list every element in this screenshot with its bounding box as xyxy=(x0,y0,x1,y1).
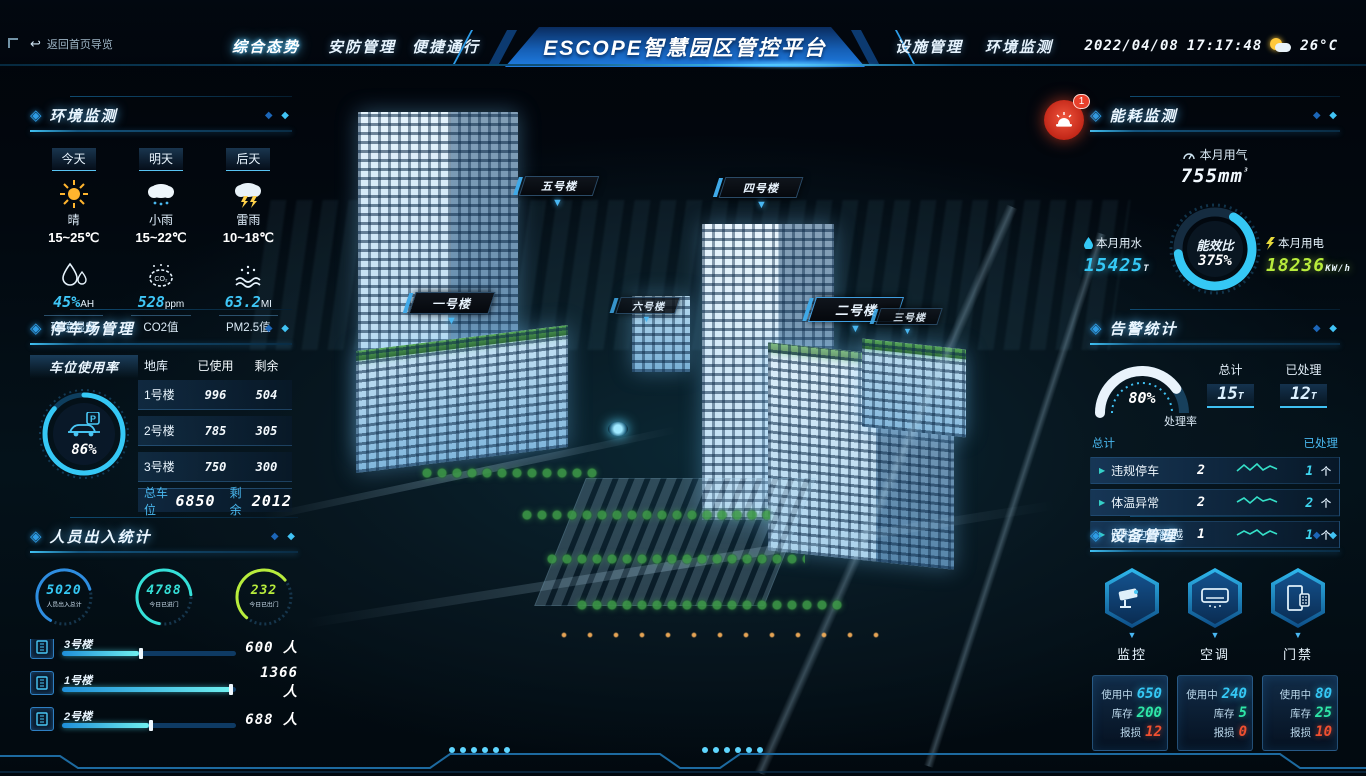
panel-diamond-icon: ◈ xyxy=(1090,319,1102,337)
occupancy-slider: 1号楼 1366 人 xyxy=(30,665,298,701)
building-occupancy-sliders: 3号楼 600 人 1号楼 1366 人 2号楼 688 人 xyxy=(30,639,298,743)
hex-pointer-icon: ▼ xyxy=(1096,630,1168,640)
tree-row xyxy=(545,552,805,566)
panel-diamond-icon: ◈ xyxy=(30,106,42,124)
sparkline xyxy=(1217,461,1297,480)
parking-lot xyxy=(534,478,816,606)
sparkline xyxy=(1217,493,1297,512)
col-left: 剩余 xyxy=(241,357,292,374)
svg-text:CO₂: CO₂ xyxy=(154,276,168,283)
row-arrow-icon: ▶ xyxy=(1099,466,1105,475)
total-spaces: 6850 xyxy=(175,492,215,510)
occupancy-slider: 3号楼 600 人 xyxy=(30,639,298,665)
label-pointer-icon: ▼ xyxy=(903,326,912,336)
header-divider xyxy=(0,64,1366,66)
panel-corner-diamonds: ◆ ◆ xyxy=(1313,530,1340,541)
alarm-row-temperature[interactable]: ▶ 体温异常 2 2 个 xyxy=(1090,489,1340,516)
car-parking-icon: P xyxy=(67,412,101,438)
rain-cloud-icon xyxy=(145,179,177,209)
sun-cloud-icon xyxy=(1270,38,1292,54)
co2-icon: CO₂ xyxy=(146,262,176,288)
device-card-door: 使用中80 库存25 报损10 xyxy=(1262,675,1338,751)
row-arrow-icon: ▶ xyxy=(1099,498,1105,507)
svg-text:P: P xyxy=(90,414,96,424)
hex-pointer-icon: ▼ xyxy=(1179,630,1251,640)
platform-title: ESCOPE智慧园区管控平台 xyxy=(543,32,827,62)
panel-title: 能耗监测 xyxy=(1110,105,1178,126)
alarm-row-illegal-parking[interactable]: ▶ 违规停车 2 1 个 xyxy=(1090,457,1340,484)
table-row: 2号楼 785 305 xyxy=(138,416,292,446)
panel-environment: ◈ 环境监测 ◆ ◆ 今天 晴 15~25℃ 明天 小雨 xyxy=(30,102,292,335)
panel-alarms: ◈ 告警统计 ◆ ◆ 80% 处理率 总计 15T 已处理 xyxy=(1090,315,1340,553)
street-lights xyxy=(560,632,890,638)
siren-icon xyxy=(1054,111,1074,129)
handle-rate-label: 处理率 xyxy=(1164,413,1197,429)
forecast-today: 今天 晴 15~25℃ xyxy=(30,148,117,246)
stat-total-inout: 5020 人员出入总计 xyxy=(32,565,96,629)
time-text: 17:17:48 xyxy=(1187,38,1262,54)
stat-exited-today: 232 今日已出门 xyxy=(232,565,296,629)
datetime-weather: 2022/04/08 17:17:48 26°C xyxy=(1085,38,1338,54)
alarm-bell-button[interactable]: 1 xyxy=(1044,100,1084,140)
temp-range: 15~25℃ xyxy=(30,230,117,246)
water-drop-icon xyxy=(1084,237,1093,249)
condition-label: 小雨 xyxy=(117,211,204,228)
label-pointer-icon: ▼ xyxy=(642,314,651,324)
panel-corner-diamonds: ◆ ◆ xyxy=(271,531,298,542)
tree-row xyxy=(420,466,600,480)
panel-diamond-icon: ◈ xyxy=(30,319,42,337)
panel-title: 设备管理 xyxy=(1110,525,1178,546)
label-pointer-icon: ▼ xyxy=(446,315,457,327)
lightning-icon xyxy=(1266,237,1275,250)
back-home-button[interactable]: ↩ 返回首页导览 xyxy=(30,36,113,52)
slider-track[interactable] xyxy=(62,651,236,656)
device-door-access[interactable]: ▼ 门禁 xyxy=(1262,568,1334,663)
temp-range: 10~18℃ xyxy=(205,230,292,246)
efficiency-gauge: 能效比 375% xyxy=(1163,197,1267,301)
table-row: 3号楼 750 300 xyxy=(138,452,292,482)
day-label: 明天 xyxy=(139,148,183,171)
slider-track[interactable] xyxy=(62,687,236,692)
condition-label: 雷雨 xyxy=(205,211,292,228)
alarm-handled: 已处理 12T xyxy=(1280,361,1327,421)
door-access-icon xyxy=(1285,584,1311,612)
col-used: 已使用 xyxy=(190,357,241,374)
panel-diamond-icon: ◈ xyxy=(1090,106,1102,124)
storm-cloud-icon xyxy=(232,179,264,209)
panel-diamond-icon: ◈ xyxy=(1090,526,1102,544)
panel-energy: ◈ 能耗监测 ◆ ◆ 本月用气 755mm³ 能效比 375% xyxy=(1090,102,1340,311)
label-pointer-icon: ▼ xyxy=(850,323,861,335)
top-header: ↩ 返回首页导览 综合态势 安防管理 便捷通行 ESCOPE智慧园区管控平台 设… xyxy=(0,0,1366,70)
day-label: 后天 xyxy=(226,148,270,171)
device-card-ac: 使用中240 库存5 报损0 xyxy=(1177,675,1253,751)
handle-rate-value: 80% xyxy=(1090,389,1194,407)
col-total: 总计 xyxy=(1092,435,1115,451)
building-icon xyxy=(30,707,54,731)
device-ac[interactable]: ▼ 空调 xyxy=(1179,568,1251,663)
tree-row xyxy=(575,598,845,612)
gas-label-row: 本月用气 xyxy=(1090,146,1340,163)
slider-track[interactable] xyxy=(62,723,236,728)
corner-accent xyxy=(8,38,18,48)
handle-rate-gauge: 80% 处理率 xyxy=(1090,355,1194,421)
tree-row xyxy=(520,508,770,522)
building-label-6[interactable]: 六号楼 xyxy=(615,297,681,314)
panel-people-flow: ◈ 人员出入统计 ◆ ◆ 5020 人员出入总计 4788 今日已进门 232 xyxy=(30,523,298,743)
slider-thumb[interactable] xyxy=(139,648,143,659)
ac-icon xyxy=(1200,586,1230,610)
stat-entered-today: 4788 今日已进门 xyxy=(132,565,196,629)
panel-corner-diamonds: ◆ ◆ xyxy=(1313,323,1340,334)
efficiency-value: 375% xyxy=(1163,253,1267,269)
tab-environment[interactable]: 环境监测 xyxy=(985,36,1053,57)
humidity-icon xyxy=(60,262,88,288)
header-glow xyxy=(700,60,880,69)
usage-percent: 86% xyxy=(36,442,132,458)
back-arrow-icon: ↩ xyxy=(30,36,41,52)
alarm-total: 总计 15T xyxy=(1207,361,1254,421)
tab-overview[interactable]: 综合态势 xyxy=(232,36,300,57)
panel-corner-diamonds: ◆ ◆ xyxy=(1313,110,1340,121)
electricity-usage: 本月用电 18236KW/h xyxy=(1266,235,1352,276)
slider-thumb[interactable] xyxy=(149,720,153,731)
day-label: 今天 xyxy=(52,148,96,171)
alarm-badge: 1 xyxy=(1073,94,1090,109)
panel-devices: ◈ 设备管理 ◆ ◆ ▼ 监控 xyxy=(1090,522,1340,751)
panel-parking: ◈ 停车场管理 ◆ ◆ 车位使用率 P xyxy=(30,315,292,512)
back-home-label: 返回首页导览 xyxy=(47,36,113,52)
label-pointer-icon: ▼ xyxy=(552,197,563,209)
col-handled: 已处理 xyxy=(1304,435,1339,451)
label-pointer-icon: ▼ xyxy=(756,199,767,211)
sun-icon xyxy=(59,179,89,209)
forecast-tomorrow: 明天 小雨 15~22℃ xyxy=(117,148,204,246)
col-garage: 地库 xyxy=(138,357,190,374)
date-text: 2022/04/08 xyxy=(1085,38,1179,54)
hex-pointer-icon: ▼ xyxy=(1262,630,1334,640)
panel-title: 告警统计 xyxy=(1110,318,1178,339)
panel-diamond-icon: ◈ xyxy=(30,527,42,545)
slider-thumb[interactable] xyxy=(229,684,233,695)
panel-corner-diamonds: ◆ ◆ xyxy=(265,110,292,121)
parking-totals: 总车位 6850 剩余 2012 xyxy=(138,488,292,512)
panel-corner-diamonds: ◆ ◆ xyxy=(265,323,292,334)
tab-facility[interactable]: 设施管理 xyxy=(895,36,963,57)
building-label-3[interactable]: 三号楼 xyxy=(875,308,943,325)
temperature-text: 26°C xyxy=(1300,38,1338,54)
device-card-cctv: 使用中650 库存200 报损12 xyxy=(1092,675,1168,751)
building-icon xyxy=(30,671,54,695)
water-usage: 本月用水 15425T xyxy=(1084,235,1170,276)
building-1 xyxy=(356,325,568,473)
building-label-4[interactable]: 四号楼 xyxy=(719,177,804,198)
gas-meter-icon xyxy=(1182,150,1196,160)
fountain xyxy=(608,422,628,436)
building-label-5[interactable]: 五号楼 xyxy=(519,176,599,196)
device-cctv[interactable]: ▼ 监控 xyxy=(1096,568,1168,663)
building-icon xyxy=(30,639,54,659)
gas-value: 755mm³ xyxy=(1090,165,1340,187)
condition-label: 晴 xyxy=(30,211,117,228)
temp-range: 15~22℃ xyxy=(117,230,204,246)
cctv-icon xyxy=(1117,585,1147,611)
occupancy-slider: 2号楼 688 人 xyxy=(30,701,298,737)
building-label-1[interactable]: 一号楼 xyxy=(408,292,495,314)
parking-usage-gauge: P 86% xyxy=(36,386,132,482)
forecast-dayafter: 后天 雷雨 10~18℃ xyxy=(205,148,292,246)
dashboard-root: 五号楼 ▼ 四号楼 ▼ 一号楼 ▼ 六号楼 ▼ 二号楼 ▼ 三号楼 ▼ ↩ 返回… xyxy=(0,0,1366,776)
pm25-icon xyxy=(233,262,263,288)
parking-table: 地库 已使用 剩余 1号楼 996 504 2号楼 785 305 3号楼 75… xyxy=(138,355,292,512)
panel-title: 环境监测 xyxy=(50,105,118,126)
footer-circuit-decoration xyxy=(0,742,1366,776)
usage-gauge-title: 车位使用率 xyxy=(30,355,138,378)
panel-title: 人员出入统计 xyxy=(50,526,152,547)
table-row: 1号楼 996 504 xyxy=(138,380,292,410)
panel-title: 停车场管理 xyxy=(50,318,135,339)
tab-security[interactable]: 安防管理 xyxy=(328,36,396,57)
remaining-spaces: 2012 xyxy=(252,492,292,510)
